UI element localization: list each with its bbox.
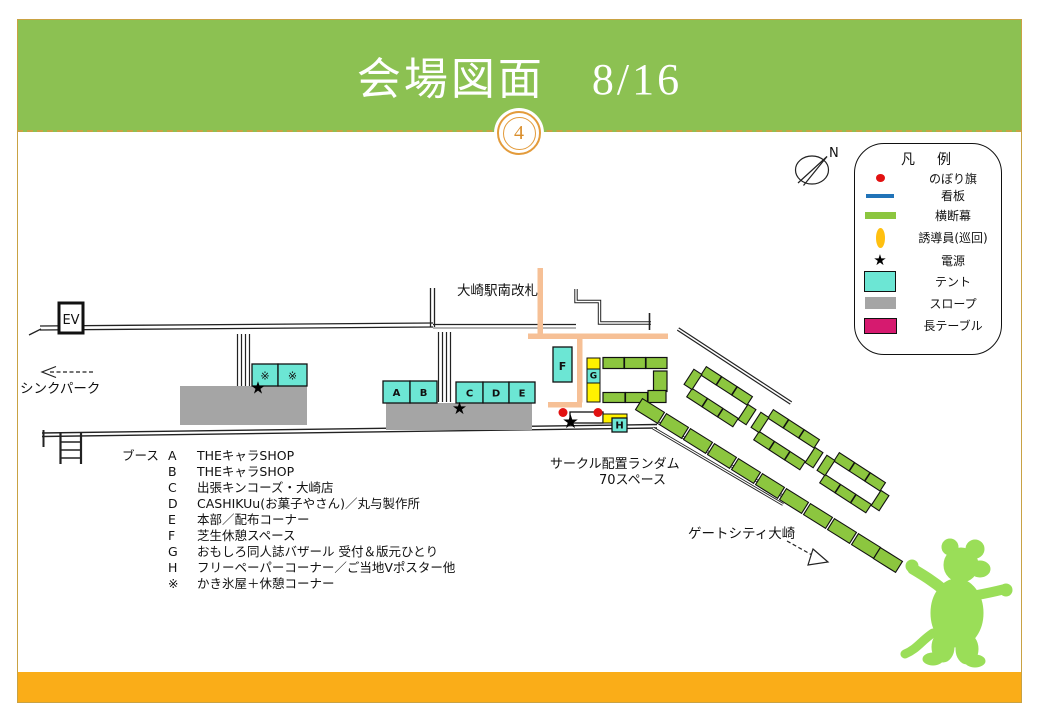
- booth-id: A: [168, 448, 177, 463]
- compass-icon: N: [796, 146, 839, 186]
- gate-city-label: ゲートシティ大崎: [688, 526, 795, 542]
- legend-row-slope: スロープ: [855, 293, 1001, 313]
- stairs-west: [238, 334, 250, 386]
- legend-row-banner: 横断幕: [855, 205, 1001, 225]
- legend-row-signboard: 看板: [855, 186, 1001, 205]
- legend-label: テント: [905, 273, 1001, 290]
- booth-name: THEキャラSHOP: [196, 464, 295, 479]
- booth-name: CASHIKUu(お菓子やさん)／丸与製作所: [197, 496, 420, 511]
- stairs-center: [439, 332, 451, 402]
- slope-marker-icon: [855, 297, 905, 309]
- power-star-west: ★: [250, 379, 265, 399]
- ev-label: EV: [62, 313, 79, 328]
- slide-right-border: [1021, 19, 1022, 703]
- tent-h-label: H: [615, 421, 623, 432]
- legend-box: 凡 例 のぼり旗 看板 横断幕 誘導員(巡回) ★ 電源 テント スロー: [854, 143, 1002, 355]
- flag-dot-right: [594, 408, 603, 417]
- circle-space-strip: [636, 399, 903, 573]
- guide-marker-icon: [855, 228, 905, 248]
- page-number-medal: 4: [494, 108, 544, 158]
- legend-row-power: ★ 電源: [855, 250, 1001, 270]
- tent-f-label: F: [559, 360, 567, 373]
- flag-marker-icon: [855, 174, 905, 182]
- circle-space-ring-2: [746, 405, 828, 475]
- legend-label: 横断幕: [905, 207, 1001, 224]
- legend-label: 看板: [905, 187, 1001, 204]
- elevator-box: EV: [59, 303, 83, 333]
- tent-b-label: B: [420, 388, 428, 399]
- gate-city-arrow: [787, 541, 828, 565]
- legend-label: 長テーブル: [905, 317, 1001, 334]
- booth-name: おもしろ同人誌バザール 受付＆版元ひとり: [197, 544, 438, 559]
- legend-row-tent: テント: [855, 270, 1001, 293]
- tent-kakigori2-label: ※: [288, 370, 297, 383]
- slope-west: [180, 386, 307, 425]
- think-park-label: シンクパーク: [20, 381, 100, 397]
- footer-band: [17, 672, 1022, 702]
- booth-id: C: [168, 480, 177, 495]
- legend-label: スロープ: [905, 295, 1001, 312]
- booth-id: H: [168, 560, 177, 575]
- circle-space-ring-0: [603, 358, 667, 403]
- slide-left-border: [17, 19, 18, 703]
- booth-list: ブース A THEキャラSHOP B THEキャラSHOP C 出張キンコーズ・…: [122, 448, 456, 591]
- legend-row-flag: のぼり旗: [855, 170, 1001, 186]
- booth-id: ※: [168, 576, 178, 591]
- booth-list-prefix: ブース: [122, 448, 159, 463]
- tent-d-label: D: [492, 389, 500, 400]
- legend-title: 凡 例: [855, 149, 1001, 170]
- circle-note-line2: 70スペース: [599, 473, 666, 488]
- station-gate-label: 大崎駅南改札: [457, 283, 538, 299]
- medal-outer-ring: 4: [497, 111, 541, 155]
- power-star-icon: ★: [855, 253, 905, 268]
- station-structure-lines: [576, 289, 651, 330]
- compass-north-label: N: [829, 146, 839, 161]
- power-star-center: ★: [452, 399, 467, 419]
- legend-row-guide: 誘導員(巡回): [855, 225, 1001, 250]
- page-number: 4: [514, 122, 524, 145]
- circle-space-ring-3: [812, 448, 894, 518]
- slide-bottom-border: [17, 702, 1022, 703]
- legend-label: 電源: [905, 252, 1001, 269]
- legend-label: 誘導員(巡回): [905, 229, 1001, 246]
- tent-e-label: E: [519, 389, 526, 400]
- booth-id: F: [168, 528, 175, 543]
- booth-name: 芝生休憩スペース: [197, 528, 296, 543]
- signboard-marker-icon: [855, 194, 905, 198]
- medal-inner-ring: 4: [503, 117, 536, 150]
- booth-name: かき氷屋＋休憩コーナー: [197, 576, 335, 591]
- booth-name: フリーペーパーコーナー／ご当地Vポスター他: [197, 560, 456, 575]
- mascot-icon: [905, 539, 1012, 667]
- legend-label: のぼり旗: [905, 170, 1001, 187]
- tent-a-label: A: [393, 388, 401, 399]
- power-star-east: ★: [562, 411, 579, 433]
- slide: 会場図面 8/16 4: [0, 0, 1040, 720]
- think-park-arrow: [42, 367, 93, 378]
- circle-note-line1: サークル配置ランダム: [550, 457, 680, 472]
- tent-c-label: C: [466, 389, 473, 400]
- booth-name: 本部／配布コーナー: [197, 512, 310, 527]
- banner-marker-icon: [855, 212, 905, 219]
- booth-name: 出張キンコーズ・大崎店: [197, 480, 334, 495]
- booth-id: D: [168, 496, 178, 511]
- legend-row-table: 長テーブル: [855, 313, 1001, 338]
- circle-space-ring-1: [679, 362, 761, 432]
- tent-marker-icon: [855, 271, 905, 292]
- booth-id: E: [168, 512, 176, 527]
- booth-name: THEキャラSHOP: [196, 448, 295, 463]
- table-marker-icon: [855, 318, 905, 334]
- tent-g-label: G: [590, 372, 597, 382]
- page-title: 会場図面 8/16: [357, 43, 682, 107]
- booth-id: B: [168, 464, 177, 479]
- booth-id: G: [168, 544, 178, 559]
